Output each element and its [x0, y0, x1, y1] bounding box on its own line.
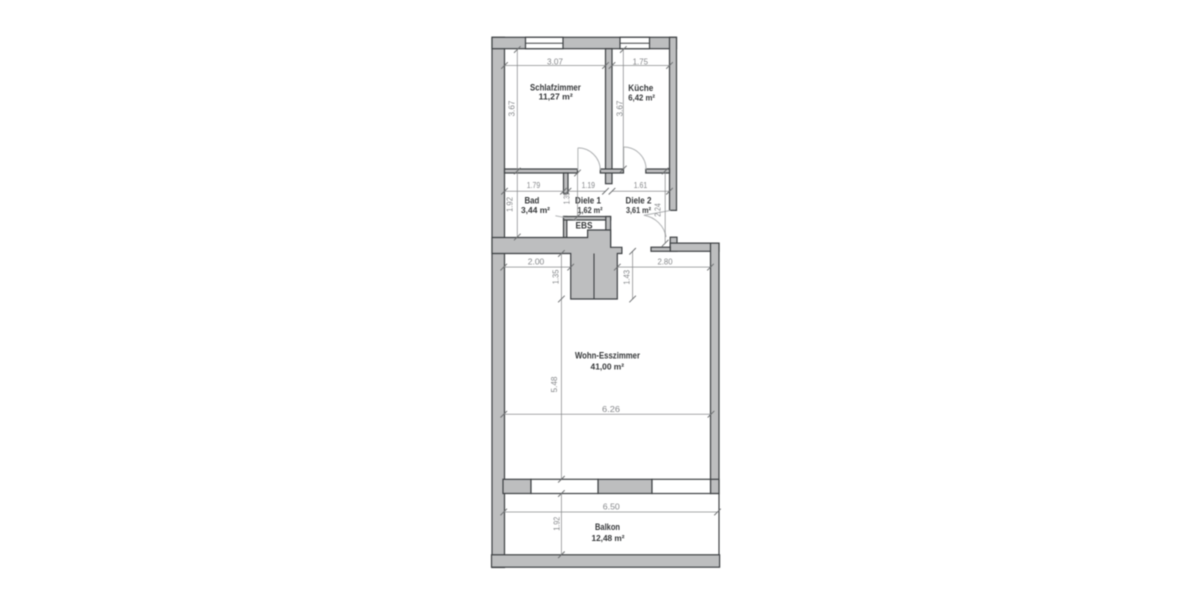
svg-text:6,42 m²: 6,42 m² — [628, 93, 655, 103]
svg-text:1.61: 1.61 — [634, 181, 648, 190]
svg-text:3.67: 3.67 — [508, 100, 517, 116]
svg-text:12,48 m²: 12,48 m² — [592, 533, 625, 543]
svg-text:1.79: 1.79 — [527, 181, 541, 190]
svg-text:1.75: 1.75 — [633, 57, 649, 66]
svg-text:3.07: 3.07 — [547, 57, 563, 66]
svg-text:1.35: 1.35 — [552, 269, 561, 284]
svg-text:5.48: 5.48 — [550, 376, 559, 392]
svg-text:Balkon: Balkon — [595, 522, 620, 533]
svg-text:6.50: 6.50 — [603, 502, 620, 511]
svg-text:3,61 m²: 3,61 m² — [626, 205, 651, 215]
svg-text:11,27 m²: 11,27 m² — [539, 91, 573, 101]
svg-text:2.80: 2.80 — [658, 258, 673, 267]
svg-text:1,62 m²: 1,62 m² — [578, 205, 603, 215]
svg-text:1.19: 1.19 — [582, 181, 596, 190]
svg-text:41,00 m²: 41,00 m² — [591, 361, 625, 371]
svg-text:3.67: 3.67 — [615, 100, 624, 116]
svg-text:1.43: 1.43 — [623, 270, 632, 285]
svg-text:2.00: 2.00 — [528, 258, 545, 267]
svg-text:6.26: 6.26 — [602, 405, 621, 414]
svg-text:1.35: 1.35 — [563, 192, 572, 204]
svg-text:Wohn-Esszimmer: Wohn-Esszimmer — [575, 351, 640, 362]
svg-text:1.92: 1.92 — [506, 197, 515, 212]
svg-text:1.92: 1.92 — [553, 516, 562, 530]
svg-text:3,44 m²: 3,44 m² — [521, 205, 550, 215]
svg-text:2.24: 2.24 — [653, 203, 662, 217]
